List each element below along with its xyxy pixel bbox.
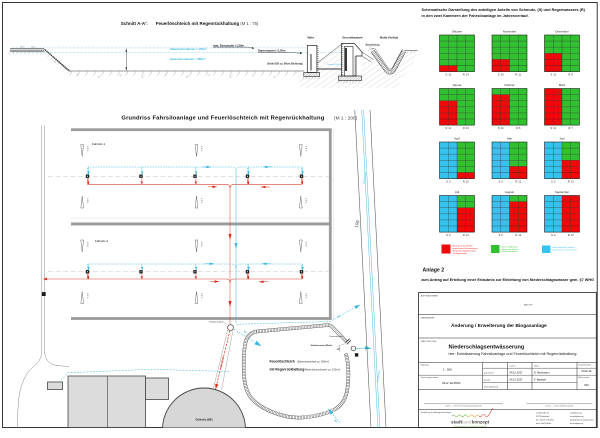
svg-text:Mulde (Vorflut): Mulde (Vorflut)	[380, 35, 398, 39]
svg-text:Anlage 2: Anlage 2	[423, 267, 445, 273]
svg-text:Name: Name	[534, 366, 540, 368]
svg-text:06.12.2017: 06.12.2017	[510, 377, 524, 381]
svg-text:2,0 %: 2,0 %	[200, 293, 202, 298]
svg-text:2,0 %: 2,0 %	[86, 146, 88, 151]
svg-text:(Dauerstauinhalt ca. 380m³): (Dauerstauinhalt ca. 380m³)	[297, 360, 329, 364]
svg-text:S: 0: S: 0	[446, 234, 451, 237]
svg-text:BAUORT:: BAUORT:	[524, 304, 533, 307]
svg-text:S: 0: S: 0	[551, 234, 556, 237]
svg-text:Niederschlagsentwässerung: Niederschlagsentwässerung	[449, 344, 525, 350]
svg-text:(M 1 : 200): (M 1 : 200)	[334, 116, 358, 122]
svg-text:Dezember: Dezember	[555, 29, 568, 33]
svg-text:Feuerlöschteich mit Regenrückh: Feuerlöschteich mit Regenrückhaltung	[156, 21, 240, 26]
svg-text:land: land	[462, 420, 471, 425]
svg-text:S: 12: S: 12	[445, 74, 451, 77]
svg-text:2,0 %: 2,0 %	[304, 293, 306, 298]
svg-text:R: 7: R: 7	[569, 127, 574, 130]
svg-text:2,0 %: 2,0 %	[86, 198, 88, 203]
svg-text:S: 0: S: 0	[446, 181, 451, 184]
svg-text:R: 10: R: 10	[463, 127, 469, 130]
svg-text:Schnitt A-A':: Schnitt A-A':	[121, 21, 148, 26]
svg-text:S: 11: S: 11	[550, 74, 556, 77]
svg-text:Drosselbauwerk: Drosselbauwerk	[343, 35, 364, 39]
svg-text:Mai: Mai	[507, 136, 512, 140]
svg-text:2,0 %: 2,0 %	[86, 293, 88, 298]
svg-text:2,0 %: 2,0 %	[304, 146, 306, 151]
svg-text:August: August	[505, 190, 514, 194]
svg-text:D. Beckmann: D. Beckmann	[534, 370, 550, 374]
svg-text:S: 0: S: 0	[499, 181, 504, 184]
svg-text:38,65: 38,65	[20, 47, 24, 49]
svg-text:R: 12: R: 12	[568, 234, 574, 237]
svg-text:S: 10: S: 10	[498, 127, 504, 130]
svg-text:arndtstraße 09: arndtstraße 09	[536, 412, 550, 415]
svg-text:Juli: Juli	[455, 190, 460, 194]
svg-text:fon: 05231 / 916261: fon: 05231 / 916261	[536, 420, 555, 422]
svg-text:Zeichnungsnummer: Zeichnungsnummer	[421, 377, 439, 379]
svg-text:Güllesilo (BE): Güllesilo (BE)	[195, 418, 212, 422]
svg-text:2,0 %: 2,0 %	[200, 242, 202, 247]
svg-text:Maßstab: Maßstab	[421, 364, 430, 367]
svg-text:Schieberwerk (Wehr): Schieberwerk (Wehr)	[311, 345, 333, 347]
svg-text:S: 0: S: 0	[551, 181, 556, 184]
svg-text:R: 11: R: 11	[515, 74, 521, 77]
svg-text:Drossel DN 100: Drossel DN 100	[327, 63, 343, 66]
svg-text:002: 002	[584, 383, 589, 387]
svg-text:November: November	[503, 29, 516, 33]
svg-text:R: 9: R: 9	[569, 74, 574, 77]
svg-text:(Retentionsvolumen ca. 150m³): (Retentionsvolumen ca. 150m³)	[304, 368, 340, 372]
svg-text:S: 0: S: 0	[499, 234, 504, 237]
svg-text:R: 14: R: 14	[463, 74, 469, 77]
svg-text:32756 detmold: 32756 detmold	[536, 415, 549, 418]
svg-text:max. Einstauziel +1,50m: max. Einstauziel +1,50m	[213, 43, 244, 47]
svg-text:April: April	[454, 136, 460, 140]
svg-text:Februar: Februar	[504, 83, 514, 87]
svg-text:Feuerlöschteich: Feuerlöschteich	[270, 360, 295, 364]
svg-text:stadtplanung: stadtplanung	[570, 412, 581, 415]
svg-text:Pumpensumpf: Pumpensumpf	[209, 321, 223, 323]
svg-text:stadt: stadt	[451, 420, 463, 425]
svg-text:in den zwei Kammern der Fahrsi: in den zwei Kammern der Fahrsiloanlage i…	[422, 14, 529, 18]
svg-text:Fahrsilo 2: Fahrsilo 2	[95, 239, 109, 243]
svg-text:2,0 %: 2,0 %	[304, 242, 306, 247]
svg-text:2,0 %: 2,0 %	[304, 198, 306, 203]
svg-text:1 : 500: 1 : 500	[443, 367, 452, 371]
svg-text:38,60: 38,60	[31, 47, 35, 49]
svg-text:Stauraumvolumen ≈ 150m³: Stauraumvolumen ≈ 150m³	[170, 47, 207, 51]
svg-text:mail: info@slk.de: mail: info@slk.de	[536, 423, 552, 425]
svg-text:2,0 %: 2,0 %	[86, 242, 88, 247]
svg-text:Januar: Januar	[453, 83, 462, 87]
svg-text:AUFTRAGGEBER:: AUFTRAGGEBER:	[421, 295, 439, 298]
svg-text:Speichervolumen ≈ 380m³: Speichervolumen ≈ 380m³	[170, 57, 206, 61]
svg-text:geprüft: geprüft	[484, 378, 491, 381]
svg-text:DARSTELLUNG:: DARSTELLUNG:	[421, 340, 437, 343]
svg-text:Fahrsilo 1: Fahrsilo 1	[92, 142, 106, 146]
svg-text:Sohle (OK ca. 80cm Dichtung): Sohle (OK ca. 80cm Dichtung)	[267, 62, 303, 65]
svg-text:04.12.2017: 04.12.2017	[510, 370, 524, 374]
svg-text:umweltplanung: umweltplanung	[570, 415, 583, 418]
svg-text:2,0 %: 2,0 %	[200, 146, 202, 151]
svg-text:2,0 %: 2,0 %	[200, 198, 202, 203]
svg-text:gezeichnet: gezeichnet	[484, 371, 494, 374]
svg-text:letzte Änderung: letzte Änderung	[484, 385, 498, 388]
svg-text:März: März	[559, 83, 566, 87]
svg-text:R: 10: R: 10	[463, 181, 469, 184]
svg-text:Grundriss Fahrsiloanlage und F: Grundriss Fahrsiloanlage und Feuerlöscht…	[121, 116, 324, 122]
svg-text:konzept: konzept	[472, 420, 490, 425]
svg-text:Drosselschacht: Drosselschacht	[330, 335, 344, 338]
svg-text:(M 1 : 75): (M 1 : 75)	[240, 21, 259, 26]
svg-text:zum Antrag auf Erteilung einer: zum Antrag auf Erteilung einer Erlaubnis…	[421, 278, 594, 282]
svg-text:(Sicherheitsreserve): (Sicherheitsreserve)	[502, 250, 518, 253]
svg-text:S: 11: S: 11	[550, 127, 556, 130]
svg-text:R: 13: R: 13	[568, 181, 574, 184]
svg-text:R: 14: R: 14	[463, 234, 469, 237]
svg-text:Datum — Unterschrift Antrags: Datum — Unterschrift Antragsteller	[546, 405, 574, 408]
svg-text:Erstellung der Antragsunterlag: Erstellung der Antragsunterlagen:	[421, 411, 452, 414]
svg-text:September: September	[555, 190, 569, 194]
svg-text:Schematische Darstellung des a: Schematische Darstellung des anteiligen …	[422, 8, 586, 12]
svg-text:hier: Entwässerung Fahrsiloanl: hier: Entwässerung Fahrsiloanlage und Fe…	[449, 352, 577, 356]
svg-text:R: 8: R: 8	[516, 127, 521, 130]
svg-text:mit Regenrückhaltung: mit Regenrückhaltung	[270, 368, 305, 372]
svg-text:S: 11: S: 11	[445, 127, 451, 130]
svg-text:Wehr: Wehr	[308, 35, 314, 39]
svg-text:MASSNAHME:: MASSNAHME:	[421, 316, 435, 319]
svg-text:R: 12: R: 12	[515, 181, 521, 184]
svg-text:Regenwasser in den Teich (R): Regenwasser in den Teich (R)	[553, 249, 577, 251]
svg-text:Änderung / Erweiterung der Bio: Änderung / Erweiterung der Biogasanlage	[451, 322, 547, 329]
svg-text:Planungsbüro für Stadt & Umwel: Planungsbüro für Stadt & Umwelt	[454, 425, 487, 428]
svg-text:0412 -ELP002: 0412 -ELP002	[442, 381, 461, 385]
svg-text:und Regenwasser: und Regenwasser	[453, 253, 468, 255]
svg-text:ökologische fachgutachten: ökologische fachgutachten	[570, 419, 594, 422]
svg-text:F. Bautsch: F. Bautsch	[534, 377, 547, 381]
svg-text:Projektnummer: Projektnummer	[579, 364, 592, 367]
svg-text:Juni: Juni	[559, 136, 565, 140]
svg-text:Blattnummer: Blattnummer	[579, 376, 590, 379]
svg-text:S: 10: S: 10	[498, 74, 504, 77]
svg-text:Oktober: Oktober	[452, 29, 462, 33]
svg-text:Datum: Datum	[510, 365, 516, 368]
svg-text:0412-16: 0412-16	[582, 369, 592, 373]
svg-text:Datum — Unterschrift Genehmi: Datum — Unterschrift Genehmigungsbehörde	[445, 405, 482, 408]
svg-text:bauleitplanung: bauleitplanung	[570, 422, 583, 425]
svg-text:R: 14: R: 14	[515, 234, 521, 237]
svg-text:Dauerstauziel +1,20m: Dauerstauziel +1,20m	[258, 49, 286, 53]
